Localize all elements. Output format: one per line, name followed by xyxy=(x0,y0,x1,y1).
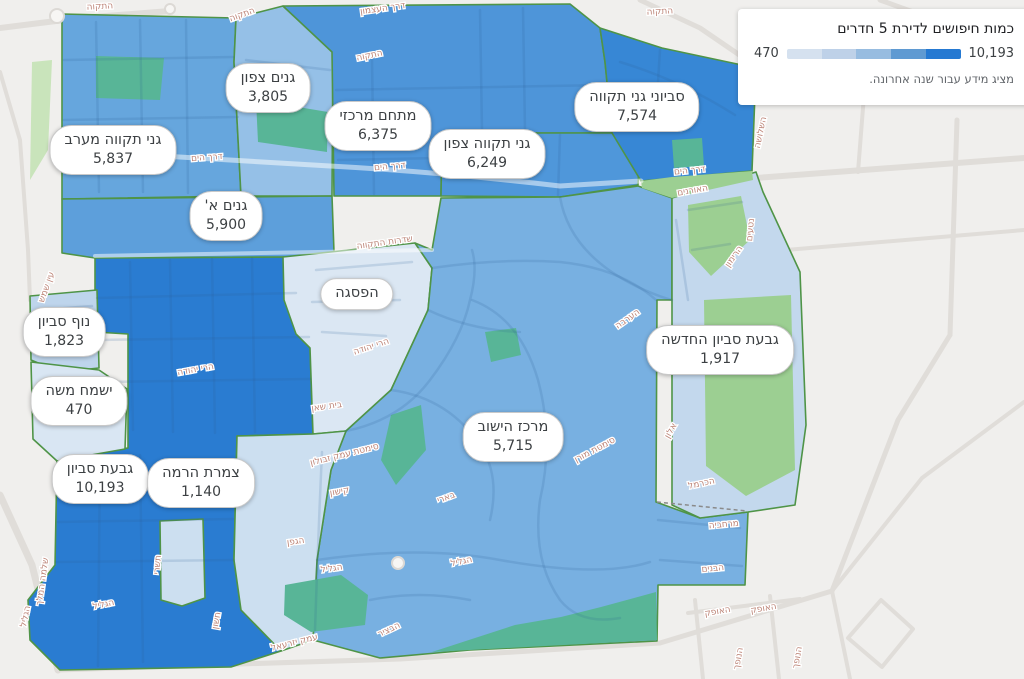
region-name: הפסגה xyxy=(335,284,378,303)
region-name: גנים א' xyxy=(205,197,248,216)
street-label: נטעים xyxy=(745,218,757,242)
street-label: תשרי xyxy=(152,555,164,575)
region-tzameret-block[interactable] xyxy=(160,519,205,606)
legend-ramp-segment xyxy=(787,49,822,59)
legend-scale: 470 10,193 xyxy=(754,46,1014,61)
legend-ramp-segment xyxy=(926,49,961,59)
region-name: ישמח משה xyxy=(45,382,112,401)
region-value: 3,805 xyxy=(241,88,296,106)
region-name: גני תקווה צפון xyxy=(444,135,531,154)
park-area xyxy=(96,56,164,100)
region-label-pisga[interactable]: הפסגה xyxy=(320,278,393,310)
region-name: מרכז הישוב xyxy=(478,418,549,437)
legend-ramp-segment xyxy=(856,49,891,59)
region-label-merkaz-hayishuv[interactable]: מרכז הישוב5,715 xyxy=(463,412,564,462)
region-value: 6,375 xyxy=(339,126,416,144)
region-name: נוף סביון xyxy=(38,313,91,332)
region-value: 5,900 xyxy=(205,216,248,234)
legend-min-value: 470 xyxy=(754,46,779,61)
region-value: 1,823 xyxy=(38,332,91,350)
region-name: גנים צפון xyxy=(241,69,296,88)
region-value: 6,249 xyxy=(444,154,531,172)
region-name: גני תקווה מערב xyxy=(65,131,162,150)
region-label-gt-west[interactable]: גני תקווה מערב5,837 xyxy=(50,125,177,175)
park-area xyxy=(672,138,704,168)
roundabout xyxy=(392,557,404,569)
street-label: התקוה xyxy=(646,6,673,17)
roundabout xyxy=(165,4,175,14)
region-label-givat-hachadasha[interactable]: גבעת סביון החדשה1,917 xyxy=(646,325,794,375)
legend-max-value: 10,193 xyxy=(969,46,1015,61)
street-label: התקוה xyxy=(86,1,113,12)
region-value: 7,574 xyxy=(589,107,684,125)
legend-note: מציג מידע עבור שנה אחרונה. xyxy=(754,72,1014,86)
region-label-tzameret-harama[interactable]: צמרת הרמה1,140 xyxy=(147,458,255,508)
region-label-gt-tzafon[interactable]: גני תקווה צפון6,249 xyxy=(429,129,546,179)
region-label-savyoney[interactable]: סביוני גני תקווה7,574 xyxy=(574,82,699,132)
region-name: מתחם מרכזי xyxy=(339,107,416,126)
roundabout xyxy=(50,9,64,23)
region-name: גבעת סביון החדשה xyxy=(661,331,779,350)
region-name: סביוני גני תקווה xyxy=(589,88,684,107)
region-label-mitcham-merkazi[interactable]: מתחם מרכזי6,375 xyxy=(324,101,431,151)
legend-title: כמות חיפושים לדירת 5 חדרים xyxy=(754,21,1014,37)
region-value: 5,837 xyxy=(65,150,162,168)
region-name: צמרת הרמה xyxy=(162,464,240,483)
map-canvas: התקוההתקוהדרך העצמוןהתקוההתקוהדרך היםדרך… xyxy=(0,0,1024,679)
legend-ramp-segment xyxy=(891,49,926,59)
region-label-ganim-a[interactable]: גנים א'5,900 xyxy=(190,191,263,241)
legend-color-ramp xyxy=(787,49,961,59)
region-value: 1,917 xyxy=(661,350,779,368)
region-value: 1,140 xyxy=(162,483,240,501)
region-value: 10,193 xyxy=(67,479,134,497)
legend-card: כמות חיפושים לדירת 5 חדרים 470 10,193 מצ… xyxy=(738,9,1024,105)
region-label-nof-savyon[interactable]: נוף סביון1,823 xyxy=(23,307,106,357)
street-label: הבנים xyxy=(701,563,725,575)
region-value: 5,715 xyxy=(478,437,549,455)
region-name: גבעת סביון xyxy=(67,460,134,479)
region-value: 470 xyxy=(45,401,112,419)
region-label-ganim-tzafon[interactable]: גנים צפון3,805 xyxy=(226,63,311,113)
region-label-givat-savyon[interactable]: גבעת סביון10,193 xyxy=(52,454,149,504)
region-label-yismach-moshe[interactable]: ישמח משה470 xyxy=(30,376,127,426)
legend-ramp-segment xyxy=(822,49,857,59)
